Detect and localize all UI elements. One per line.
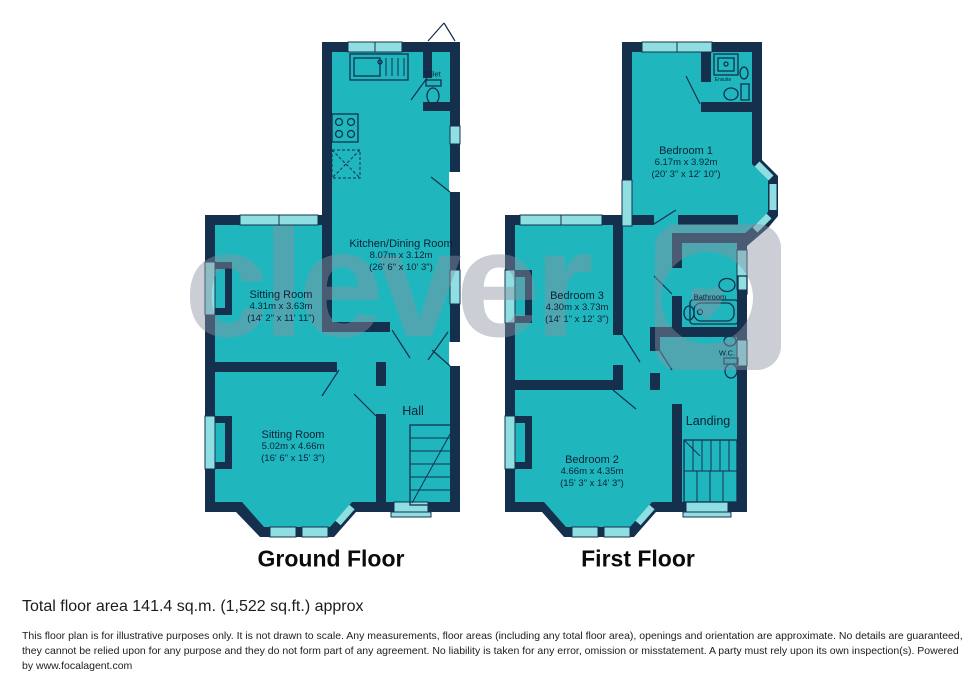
room-label-toilet: Toilet — [423, 70, 441, 79]
room-label-bathroom: Bathroom — [694, 293, 727, 302]
room-label-kitchen: Kitchen/Dining Room 8.07m x 3.12m (26' 6… — [349, 238, 452, 274]
room-label-bedroom-2: Bedroom 2 4.66m x 4.35m (15' 3" x 14' 3"… — [560, 454, 624, 490]
first-floor-title: First Floor — [581, 546, 695, 573]
room-label-hall: Hall — [402, 404, 424, 418]
room-label-wc: W.C. — [719, 349, 735, 358]
ground-floor-plan — [205, 23, 462, 537]
total-floor-area: Total floor area 141.4 sq.m. (1,522 sq.f… — [22, 598, 364, 616]
room-label-bedroom-3: Bedroom 3 4.30m x 3.73m (14' 1" x 12' 3"… — [545, 290, 609, 326]
room-label-ensuite: Ensuite — [715, 77, 732, 83]
room-label-bedroom-1: Bedroom 1 6.17m x 3.92m (20' 3" x 12' 10… — [652, 145, 721, 181]
room-label-sitting-room-2: Sitting Room 5.02m x 4.66m (16' 6" x 15'… — [261, 429, 325, 465]
ground-floor-title: Ground Floor — [258, 546, 405, 573]
room-label-sitting-room-1: Sitting Room 4.31m x 3.63m (14' 2" x 11'… — [247, 289, 315, 325]
disclaimer-text: This floor plan is for illustrative purp… — [22, 629, 968, 674]
floor-plans — [0, 0, 980, 590]
room-label-landing: Landing — [686, 414, 731, 428]
